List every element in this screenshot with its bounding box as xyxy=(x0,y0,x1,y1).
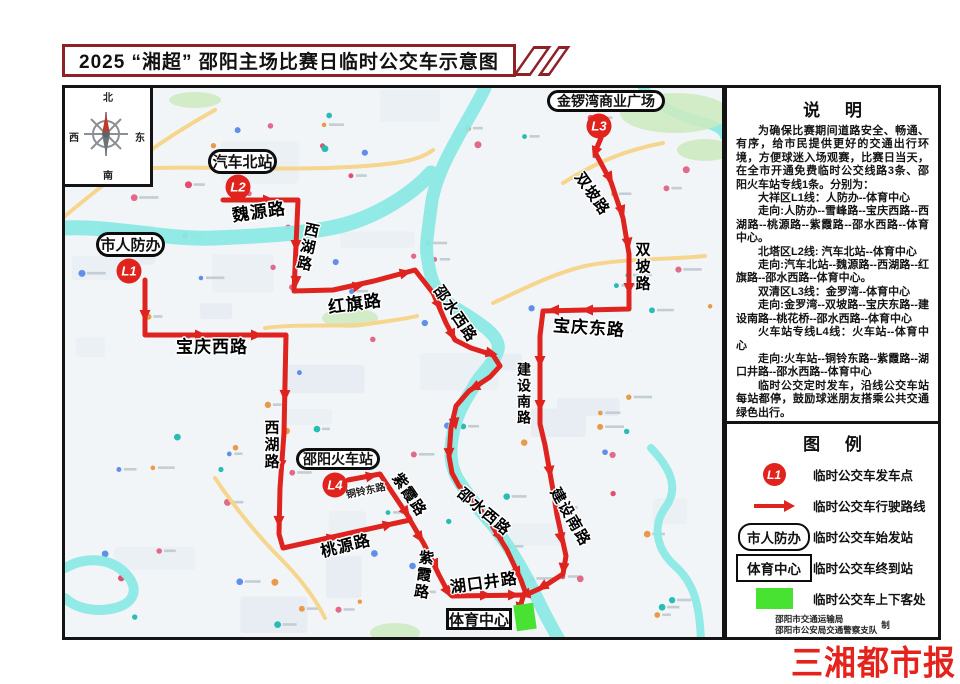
route-arrow-icon xyxy=(735,500,813,512)
note-paragraph: 走向:金罗湾--双坡路--宝庆东路--建设南路--桃花桥--邵水西路--体育中心 xyxy=(736,299,929,326)
legend-item-label: 临时公交车行驶路线 xyxy=(813,496,926,515)
station-box: 金锣湾商业广场 xyxy=(547,90,665,112)
legend-item: 临时公交车行驶路线 xyxy=(735,490,930,521)
road-label: 建设南路 xyxy=(517,362,531,426)
road-label: 西湖路 xyxy=(264,420,279,471)
note-paragraph: 走向:火车站--铜铃东路--紫霞路--湖口井路--邵水西路--体育中心 xyxy=(736,353,929,380)
minor-road-shapes xyxy=(65,110,705,618)
station-box: 邵阳火车站 xyxy=(296,448,380,470)
credits: 邵阳市交通运输局邵阳市公安局交通警察支队 制 xyxy=(735,614,930,638)
note-paragraph: 大祥区L1线：人防办--体育中心 xyxy=(736,192,929,205)
legend-item-label: 临时公交车始发站 xyxy=(813,527,913,546)
note-paragraph: 临时公交定时发车，沿线公交车站每站都停，鼓励球迷朋友搭乘公共交通绿色出行。 xyxy=(736,380,929,420)
route-arrow xyxy=(273,516,284,528)
route-arrow xyxy=(251,330,263,341)
newspaper-logo: 三湘都市报 xyxy=(791,637,956,684)
boarding-zone-icon xyxy=(735,588,813,609)
boarding-zone xyxy=(513,603,536,632)
road-label: 双坡路 xyxy=(635,242,650,293)
compass-west-label: 西 xyxy=(69,129,79,144)
legend-section: 图 例 L1临时公交车发车点临时公交车行驶路线市人防办临时公交车始发站体育中心临… xyxy=(724,421,941,640)
map-area: 北 南 西 东 魏源路西湖路红旗路邵水西路宝庆西路西湖路桃源路紫霞路紫霞路湖口井… xyxy=(62,85,725,640)
legend-item: 临时公交车上下客处 xyxy=(735,583,930,614)
notes-section: 说 明 为确保比赛期间道路安全、畅通、有序，给市民提供更好的交通出行环境，方便球… xyxy=(724,85,941,424)
route-arrow xyxy=(279,390,290,402)
note-paragraph: 为确保比赛期间道路安全、畅通、有序，给市民提供更好的交通出行环境，方便球迷入场观… xyxy=(736,125,929,192)
note-paragraph: 北塔区L2线: 汽车北站--体育中心 xyxy=(736,246,929,259)
legend-item-label: 临时公交车终到站 xyxy=(813,558,913,577)
legend-item: 市人防办临时公交车始发站 xyxy=(735,521,930,552)
page-title: 2025 “湘超” 邵阳主场比赛日临时公交车示意图 xyxy=(62,44,516,77)
station-box: 汽车北站 xyxy=(208,149,277,174)
end-station-icon: 体育中心 xyxy=(735,554,813,582)
station-box: 市人防办 xyxy=(96,232,165,257)
note-paragraph: 火车站专线L4线：火车站--体育中心 xyxy=(736,326,929,353)
legend-item: L1临时公交车发车点 xyxy=(735,459,930,490)
route-departure-marker: L2 xyxy=(226,175,251,200)
compass-north-label: 北 xyxy=(103,89,113,104)
road-label: 宝庆西路 xyxy=(176,339,248,356)
map-decor xyxy=(72,89,712,633)
route-arrow xyxy=(535,356,546,368)
route-arrow xyxy=(581,305,593,316)
map-canvas xyxy=(65,88,722,637)
route-departure-marker: L4 xyxy=(323,473,348,498)
legend-item-label: 临时公交车上下客处 xyxy=(813,589,926,608)
page: 2025 “湘超” 邵阳主场比赛日临时公交车示意图 xyxy=(0,0,960,684)
note-paragraph: 走向:人防办--雪峰路--宝庆西路--西湖路--桃源路--紫霞路--邵水西路--… xyxy=(736,205,929,245)
credits-suffix: 制 xyxy=(881,619,890,631)
credit-line: 邵阳市公安局交通警察支队 xyxy=(775,625,877,636)
compass-south-label: 南 xyxy=(103,167,113,182)
note-paragraph: 双清区L3线：金罗湾--体育中心 xyxy=(736,286,929,299)
credit-line: 邵阳市交通运输局 xyxy=(775,614,877,625)
route-arrow xyxy=(508,590,520,601)
legend-item: 体育中心临时公交车终到站 xyxy=(735,552,930,583)
info-panel: 说 明 为确保比赛期间道路安全、畅通、有序，给市民提供更好的交通出行环境，方便球… xyxy=(724,85,941,640)
compass-rose-icon xyxy=(81,109,131,159)
road-label: 宝庆东路 xyxy=(552,317,625,339)
station-box: 体育中心 xyxy=(446,608,512,630)
legend-item-label: 临时公交车发车点 xyxy=(813,465,913,484)
notes-heading: 说 明 xyxy=(736,96,929,121)
note-paragraph: 走向:汽车北站--魏源路--西湖路--红旗路--邵水西路--体育中心。 xyxy=(736,259,929,286)
compass-east-label: 东 xyxy=(135,129,145,144)
legend-heading: 图 例 xyxy=(735,430,930,455)
start-station-icon: 市人防办 xyxy=(735,523,813,551)
route-arrow xyxy=(547,305,559,316)
route-departure-marker: L1 xyxy=(117,259,142,284)
title-bar: 2025 “湘超” 邵阳主场比赛日临时公交车示意图 xyxy=(62,44,560,77)
compass: 北 南 西 东 xyxy=(64,87,153,187)
departure-point-icon: L1 xyxy=(735,463,813,486)
route-departure-marker: L3 xyxy=(587,114,612,139)
